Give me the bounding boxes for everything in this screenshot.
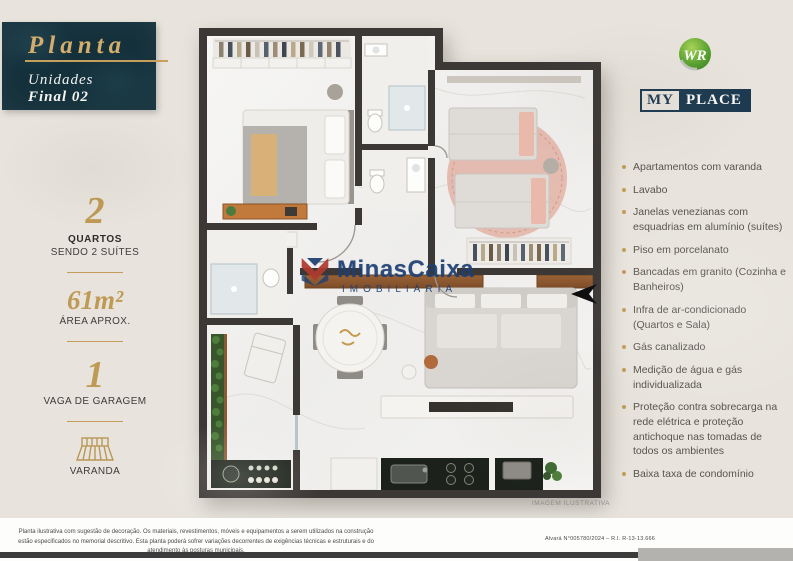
bullet-icon xyxy=(622,210,626,214)
bullet-icon xyxy=(622,472,626,476)
feature-text: Proteção contra sobrecarga na rede elétr… xyxy=(633,400,786,459)
wood-sideboard xyxy=(305,275,483,288)
bedrooms-sublabel: SENDO 2 SUÍTES xyxy=(30,247,160,258)
spec-balcony: VARANDA xyxy=(30,436,160,477)
feature-text: Gás canalizado xyxy=(633,340,705,355)
kitchen xyxy=(331,458,562,490)
plan-header-box: Planta Unidades Final 02 xyxy=(2,22,156,110)
feature-text: Apartamentos com varanda xyxy=(633,160,762,175)
feature-item: Baixa taxa de condomínio xyxy=(622,467,786,482)
lavabo-bathroom xyxy=(207,230,287,318)
feature-item: Infra de ar-condicionado (Quartos e Sala… xyxy=(622,303,786,332)
brand-logo: WR MY PLACE xyxy=(640,36,750,112)
plan-caption: IMAGEM ILUSTRATIVA xyxy=(495,500,610,507)
bullet-icon xyxy=(622,165,626,169)
bedroom-desk xyxy=(223,204,307,219)
suite-wardrobe xyxy=(467,238,571,264)
gold-underline xyxy=(25,60,168,62)
master-bed xyxy=(243,110,354,204)
specs-column: 2 QUARTOS SENDO 2 SUÍTES 61m² ÁREA APROX… xyxy=(30,192,160,477)
spec-divider xyxy=(67,421,123,422)
bathroom-1 xyxy=(362,36,428,144)
side-table xyxy=(402,365,416,379)
spec-area: 61m² ÁREA APROX. xyxy=(30,287,160,327)
feature-text: Medição de água e gás individualizada xyxy=(633,363,786,392)
feature-item: Lavabo xyxy=(622,183,786,198)
features-list: Apartamentos com varanda Lavabo Janelas … xyxy=(622,160,786,490)
spec-parking: 1 VAGA DE GARAGEM xyxy=(30,356,160,407)
feature-text: Lavabo xyxy=(633,183,667,198)
plan-subtitle-final: Final 02 xyxy=(28,89,156,106)
balcony-icon xyxy=(73,436,117,462)
kitchen-cart xyxy=(331,458,377,490)
sofa xyxy=(425,288,577,388)
bullet-icon xyxy=(622,308,626,312)
bedrooms-value: 2 xyxy=(30,192,160,230)
footer-dark-bar xyxy=(0,552,638,558)
feature-text: Baixa taxa de condomínio xyxy=(633,467,754,482)
bullet-icon xyxy=(622,188,626,192)
area-value: 61m² xyxy=(30,287,160,314)
brand-name-place: PLACE xyxy=(679,91,749,110)
bullet-icon xyxy=(622,405,626,409)
area-label: ÁREA APROX. xyxy=(30,316,160,327)
person-figure xyxy=(424,355,438,369)
barbecue-counter xyxy=(211,460,291,488)
parking-label: VAGA DE GARAGEM xyxy=(30,396,160,407)
footer-gray-bar xyxy=(638,548,793,561)
spec-divider xyxy=(67,341,123,342)
license-text: Alvará N°005780/2024 – R.I. R-13-13.666 xyxy=(545,536,655,542)
bullet-icon xyxy=(622,248,626,252)
bullet-icon xyxy=(622,270,626,274)
bedside-pouf xyxy=(327,84,343,100)
footer: Planta ilustrativa com sugestão de decor… xyxy=(0,518,793,561)
suite-bed-2 xyxy=(455,174,549,228)
brand-monogram: WR xyxy=(683,48,706,64)
bedrooms-label: QUARTOS xyxy=(30,234,160,245)
flyer-page: Planta Unidades Final 02 2 QUARTOS SENDO… xyxy=(0,0,793,561)
suite-bed-1 xyxy=(449,108,537,160)
suite-nightstand xyxy=(543,158,559,174)
brand-circle-icon: WR xyxy=(675,36,715,78)
plan-subtitle-units: Unidades xyxy=(28,72,156,89)
feature-text: Infra de ar-condicionado (Quartos e Sala… xyxy=(633,303,786,332)
plan-title: Planta xyxy=(28,32,156,60)
feature-item: Piso em porcelanato xyxy=(622,243,786,258)
tv-console xyxy=(381,396,573,418)
feature-text: Janelas venezianas com esquadrias em alu… xyxy=(633,205,786,234)
feature-item: Apartamentos com varanda xyxy=(622,160,786,175)
feature-item: Janelas venezianas com esquadrias em alu… xyxy=(622,205,786,234)
balcony-label: VARANDA xyxy=(30,466,160,477)
spec-divider xyxy=(67,272,123,273)
brand-name-my: MY xyxy=(642,91,679,110)
feature-text: Bancadas em granito (Cozinha e Banheiros… xyxy=(633,265,786,294)
brand-wordmark: MY PLACE xyxy=(640,89,751,112)
bullet-icon xyxy=(622,345,626,349)
feature-item: Gás canalizado xyxy=(622,340,786,355)
feature-text: Piso em porcelanato xyxy=(633,243,729,258)
parking-value: 1 xyxy=(30,356,160,394)
feature-item: Bancadas em granito (Cozinha e Banheiros… xyxy=(622,265,786,294)
floor-plan-drawing xyxy=(185,18,610,510)
bathroom-2 xyxy=(362,150,428,210)
floor-plan xyxy=(185,18,610,510)
spec-bedrooms: 2 QUARTOS SENDO 2 SUÍTES xyxy=(30,192,160,258)
bullet-icon xyxy=(622,368,626,372)
feature-item: Medição de água e gás individualizada xyxy=(622,363,786,392)
feature-item: Proteção contra sobrecarga na rede elétr… xyxy=(622,400,786,459)
